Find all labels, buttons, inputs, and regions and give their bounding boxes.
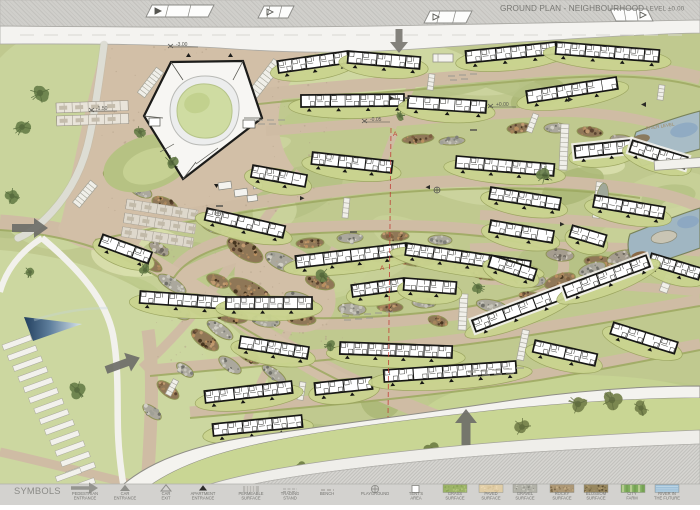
svg-text:SURFACE: SURFACE xyxy=(586,496,606,501)
svg-text:A: A xyxy=(393,131,398,138)
svg-text:SYMBOLS: SYMBOLS xyxy=(14,485,61,496)
svg-text:EXIT: EXIT xyxy=(161,496,171,501)
svg-text:ENTRANCE: ENTRANCE xyxy=(114,496,137,501)
svg-text:AREA: AREA xyxy=(410,496,421,501)
svg-text:ENTRANCE: ENTRANCE xyxy=(74,496,97,501)
svg-text:STAND: STAND xyxy=(283,496,297,501)
svg-text:SURFACE: SURFACE xyxy=(445,496,465,501)
svg-text:ENTRANCE: ENTRANCE xyxy=(192,496,215,501)
svg-text:LEVEL ±0.00: LEVEL ±0.00 xyxy=(646,6,685,13)
svg-text:PLAYGROUND: PLAYGROUND xyxy=(361,491,389,496)
svg-text:SURFACE: SURFACE xyxy=(515,496,535,501)
svg-text:THE FUTURE: THE FUTURE xyxy=(654,496,680,501)
svg-text:SURFACE: SURFACE xyxy=(241,496,261,501)
svg-text:BENCH: BENCH xyxy=(320,491,334,496)
svg-text:GROUND PLAN - NEIGHBOURHOOD: GROUND PLAN - NEIGHBOURHOOD xyxy=(500,4,644,13)
svg-text:A: A xyxy=(380,265,385,272)
svg-text:SURFACE: SURFACE xyxy=(481,496,501,501)
svg-text:SURFACE: SURFACE xyxy=(552,496,572,501)
svg-text:FARM: FARM xyxy=(626,496,638,501)
